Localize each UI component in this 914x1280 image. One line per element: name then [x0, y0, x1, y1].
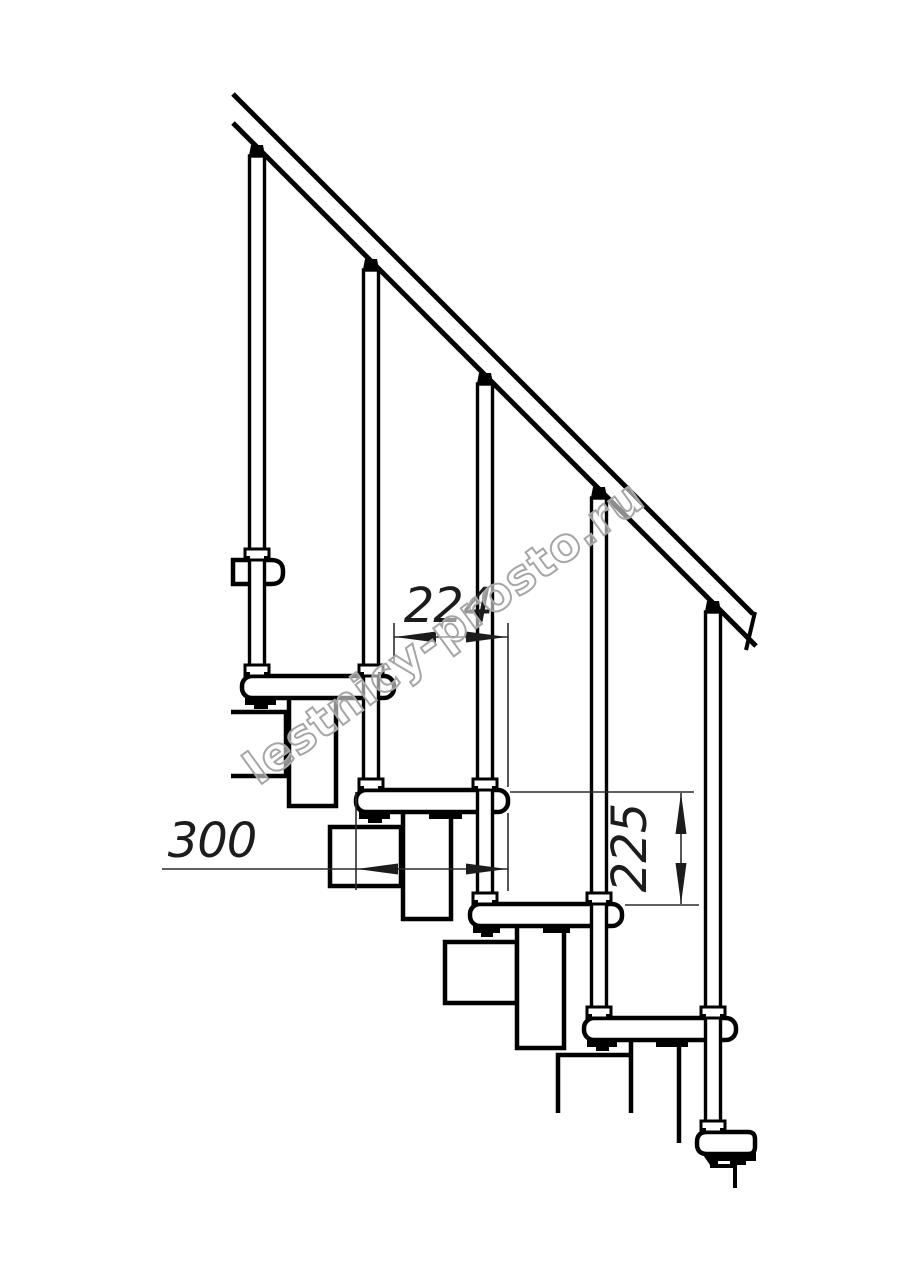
arrowhead-down	[676, 863, 687, 904]
module-riser-3	[517, 927, 564, 1048]
staircase-side-view-drawing: 224 300 225 lestnicy-prosto.ru	[0, 0, 914, 1280]
tread-5-foot	[701, 1152, 756, 1165]
module-plate-2	[330, 827, 401, 886]
baluster-5-post	[706, 612, 721, 1132]
floor-step-line	[710, 1164, 737, 1188]
tread-2-front-foot	[359, 811, 390, 823]
tread-3-rear-connector	[543, 925, 570, 933]
tread-4-rear-connector	[656, 1039, 688, 1047]
tread-1-front-foot	[245, 697, 276, 709]
baluster-3-post	[478, 384, 493, 904]
tread-2-rear-connector	[429, 811, 462, 819]
tread-bottom-partial	[697, 1132, 755, 1154]
module-plate-4	[558, 1055, 630, 1113]
baluster-5	[705, 601, 722, 1132]
dimension-rise-value: 225	[602, 804, 658, 893]
dimension-tread-depth-value: 300	[168, 813, 257, 869]
arrowhead-up	[676, 793, 687, 834]
module-riser-2	[403, 813, 451, 919]
baluster-1-post	[250, 156, 265, 676]
baluster-4	[591, 487, 608, 1018]
baluster-4-post	[592, 498, 607, 1018]
baluster-1	[249, 145, 266, 676]
tread-3-front-foot	[473, 925, 500, 937]
module-plate-3	[445, 942, 517, 1003]
tread-4-front-foot	[587, 1039, 617, 1051]
technical-drawing-page: 224 300 225 lestnicy-prosto.ru	[0, 0, 914, 1280]
dimension-rise: 225	[510, 792, 699, 905]
